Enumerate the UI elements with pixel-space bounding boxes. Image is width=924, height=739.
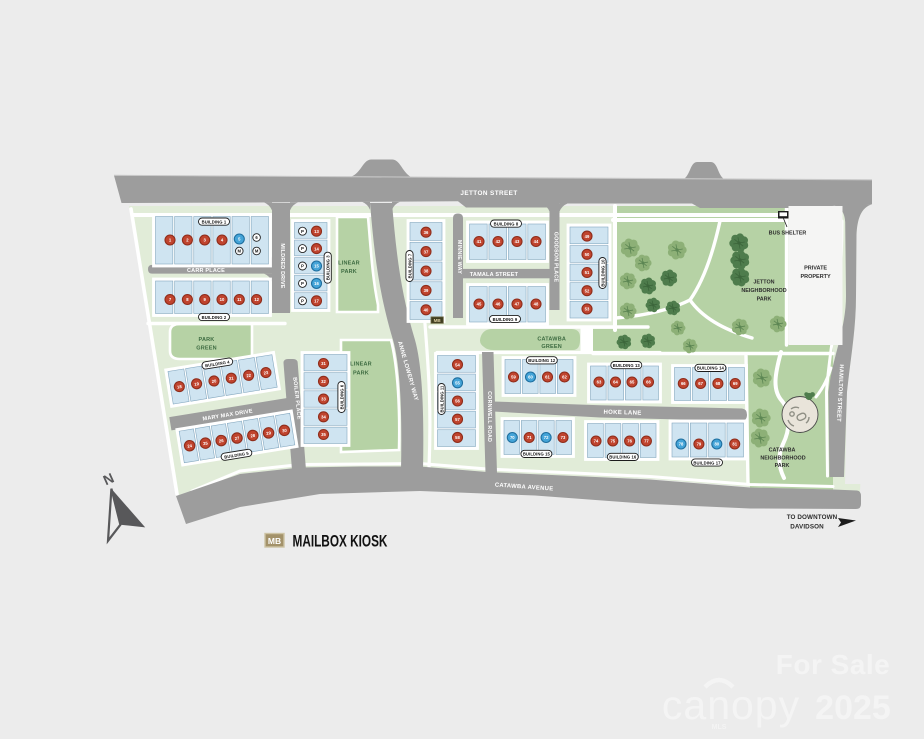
svg-text:BUILDING 17: BUILDING 17 bbox=[693, 460, 721, 465]
svg-text:59: 59 bbox=[511, 375, 516, 380]
svg-text:62: 62 bbox=[562, 375, 567, 380]
svg-text:BUILDING 14: BUILDING 14 bbox=[697, 366, 725, 371]
svg-text:57: 57 bbox=[455, 417, 460, 422]
svg-text:HOKE LANE: HOKE LANE bbox=[603, 410, 641, 417]
svg-text:BUS SHELTER: BUS SHELTER bbox=[769, 231, 807, 237]
svg-text:46: 46 bbox=[496, 302, 501, 307]
svg-text:P: P bbox=[301, 246, 304, 251]
svg-text:31: 31 bbox=[321, 361, 326, 366]
svg-text:43: 43 bbox=[515, 239, 520, 244]
svg-text:NEIGHBORHOOD: NEIGHBORHOOD bbox=[741, 288, 786, 294]
svg-text:67: 67 bbox=[698, 381, 703, 386]
svg-text:61: 61 bbox=[545, 375, 550, 380]
svg-text:JETTON: JETTON bbox=[753, 280, 774, 286]
svg-text:BUILDING 2: BUILDING 2 bbox=[202, 315, 227, 320]
svg-text:P: P bbox=[301, 229, 304, 234]
svg-text:GREEN: GREEN bbox=[541, 344, 562, 350]
svg-text:52: 52 bbox=[585, 288, 590, 293]
svg-text:MLS: MLS bbox=[712, 724, 727, 731]
svg-text:P: P bbox=[301, 264, 304, 269]
svg-text:GOODSON PLACE: GOODSON PLACE bbox=[553, 232, 559, 283]
svg-text:76: 76 bbox=[627, 439, 632, 444]
svg-text:BUILDING 1: BUILDING 1 bbox=[202, 219, 227, 224]
svg-text:15: 15 bbox=[314, 264, 319, 269]
svg-text:72: 72 bbox=[544, 435, 549, 440]
svg-text:PARK: PARK bbox=[341, 269, 357, 275]
svg-text:34: 34 bbox=[321, 415, 326, 420]
svg-text:73: 73 bbox=[561, 435, 566, 440]
svg-text:49: 49 bbox=[585, 234, 590, 239]
svg-text:78: 78 bbox=[679, 442, 684, 447]
svg-text:79: 79 bbox=[697, 442, 702, 447]
svg-text:66: 66 bbox=[681, 381, 686, 386]
svg-text:P: P bbox=[301, 281, 304, 286]
svg-text:69: 69 bbox=[733, 381, 738, 386]
svg-text:BUILDING 13: BUILDING 13 bbox=[613, 363, 641, 368]
svg-text:BUILDING 8: BUILDING 8 bbox=[494, 221, 519, 226]
svg-text:35: 35 bbox=[321, 432, 326, 437]
svg-text:13: 13 bbox=[314, 229, 319, 234]
svg-text:48: 48 bbox=[534, 302, 539, 307]
svg-text:CATAWBA: CATAWBA bbox=[537, 336, 566, 342]
svg-text:66: 66 bbox=[646, 380, 651, 385]
svg-text:LINEAR: LINEAR bbox=[338, 261, 360, 267]
svg-text:68: 68 bbox=[716, 381, 721, 386]
svg-text:64: 64 bbox=[613, 380, 618, 385]
svg-text:58: 58 bbox=[455, 435, 460, 440]
svg-text:41: 41 bbox=[477, 239, 482, 244]
svg-text:PARK: PARK bbox=[757, 297, 772, 303]
svg-text:BUILDING 12: BUILDING 12 bbox=[528, 358, 556, 363]
svg-text:80: 80 bbox=[714, 442, 719, 447]
svg-text:81: 81 bbox=[732, 442, 737, 447]
svg-text:54: 54 bbox=[455, 362, 460, 367]
svg-text:TO DOWNTOWN: TO DOWNTOWN bbox=[787, 514, 838, 521]
svg-text:39: 39 bbox=[424, 288, 429, 293]
svg-text:MAILBOX KIOSK: MAILBOX KIOSK bbox=[293, 533, 388, 551]
svg-text:PARK: PARK bbox=[199, 337, 215, 343]
svg-text:CARR PLACE: CARR PLACE bbox=[187, 268, 225, 274]
svg-text:BUILDING 16: BUILDING 16 bbox=[609, 455, 637, 460]
svg-text:PROPERTY: PROPERTY bbox=[800, 274, 831, 280]
svg-text:GREEN: GREEN bbox=[196, 346, 217, 352]
svg-text:CORNWELL ROAD: CORNWELL ROAD bbox=[486, 391, 492, 442]
svg-text:BUILDING 6: BUILDING 6 bbox=[339, 384, 344, 409]
svg-text:LINEAR: LINEAR bbox=[350, 362, 372, 368]
svg-text:51: 51 bbox=[585, 270, 590, 275]
svg-text:BUILDING 7: BUILDING 7 bbox=[407, 253, 412, 278]
svg-text:JETTON STREET: JETTON STREET bbox=[460, 190, 517, 197]
svg-text:12: 12 bbox=[254, 297, 259, 302]
svg-text:42: 42 bbox=[496, 239, 501, 244]
svg-text:74: 74 bbox=[594, 439, 599, 444]
svg-text:canopy: canopy bbox=[662, 682, 800, 728]
svg-text:PARK: PARK bbox=[353, 371, 369, 377]
svg-text:33: 33 bbox=[321, 397, 326, 402]
svg-text:MB: MB bbox=[434, 318, 442, 323]
svg-text:10: 10 bbox=[220, 297, 225, 302]
svg-text:P: P bbox=[301, 298, 304, 303]
svg-text:47: 47 bbox=[515, 302, 520, 307]
svg-text:MILDRED DRIVE: MILDRED DRIVE bbox=[279, 243, 285, 288]
svg-text:M: M bbox=[255, 249, 259, 254]
svg-text:MB: MB bbox=[268, 536, 281, 546]
svg-text:16: 16 bbox=[314, 281, 319, 286]
svg-text:BUILDING 3: BUILDING 3 bbox=[326, 255, 331, 280]
svg-text:17: 17 bbox=[314, 299, 319, 304]
svg-text:71: 71 bbox=[527, 435, 532, 440]
svg-text:37: 37 bbox=[424, 249, 429, 254]
svg-text:65: 65 bbox=[630, 380, 635, 385]
svg-text:55: 55 bbox=[455, 381, 460, 386]
svg-text:PARK: PARK bbox=[775, 463, 790, 469]
svg-text:DAVIDSON: DAVIDSON bbox=[790, 524, 824, 531]
svg-text:PRIVATE: PRIVATE bbox=[804, 266, 827, 272]
svg-text:45: 45 bbox=[477, 302, 482, 307]
svg-text:70: 70 bbox=[510, 435, 515, 440]
svg-text:32: 32 bbox=[321, 379, 326, 384]
svg-text:56: 56 bbox=[455, 399, 460, 404]
svg-text:TAMALA STREET: TAMALA STREET bbox=[470, 272, 519, 278]
svg-text:M: M bbox=[238, 249, 242, 254]
svg-text:CATAWBA: CATAWBA bbox=[769, 448, 796, 454]
svg-text:77: 77 bbox=[644, 439, 649, 444]
svg-text:75: 75 bbox=[610, 439, 615, 444]
svg-text:11: 11 bbox=[237, 297, 242, 302]
svg-text:36: 36 bbox=[424, 230, 429, 235]
svg-text:50: 50 bbox=[585, 252, 590, 257]
svg-text:BUILDING 15: BUILDING 15 bbox=[523, 452, 551, 457]
svg-text:2025: 2025 bbox=[815, 689, 891, 727]
svg-text:BUILDING 9: BUILDING 9 bbox=[493, 317, 518, 322]
svg-text:BUILDING 10: BUILDING 10 bbox=[600, 259, 605, 287]
svg-text:For Sale: For Sale bbox=[776, 649, 890, 680]
svg-text:44: 44 bbox=[534, 239, 539, 244]
svg-text:BUILDING 11: BUILDING 11 bbox=[439, 385, 444, 412]
svg-text:63: 63 bbox=[597, 380, 602, 385]
svg-text:14: 14 bbox=[314, 246, 319, 251]
svg-text:60: 60 bbox=[528, 375, 533, 380]
svg-text:40: 40 bbox=[424, 308, 429, 313]
svg-text:NEIGHBORHOOD: NEIGHBORHOOD bbox=[760, 455, 805, 461]
svg-text:53: 53 bbox=[585, 307, 590, 312]
svg-text:38: 38 bbox=[424, 269, 429, 274]
svg-text:MINNIE WAY: MINNIE WAY bbox=[456, 240, 462, 274]
